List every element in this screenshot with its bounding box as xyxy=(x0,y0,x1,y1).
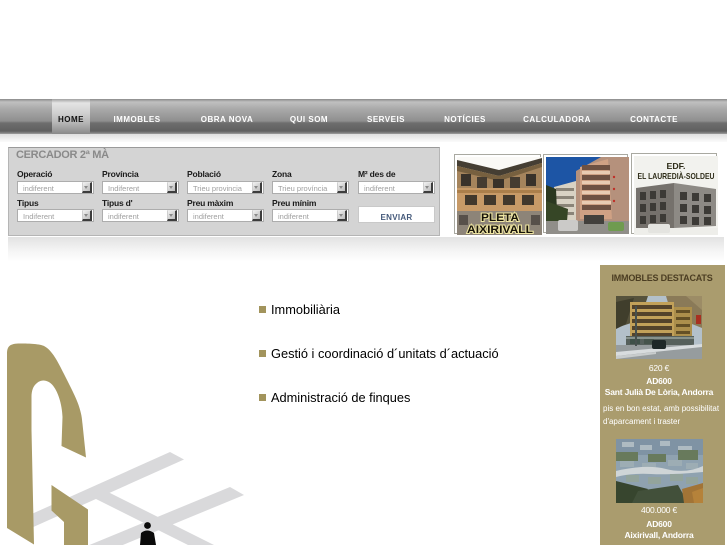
svg-text:EDF.: EDF. xyxy=(667,161,686,171)
svg-text:PLETA: PLETA xyxy=(481,212,519,224)
svg-text:AIXIRIVALL: AIXIRIVALL xyxy=(467,224,533,235)
svg-text:EL LAUREDIÀ-SOLDEU: EL LAUREDIÀ-SOLDEU xyxy=(638,171,715,181)
